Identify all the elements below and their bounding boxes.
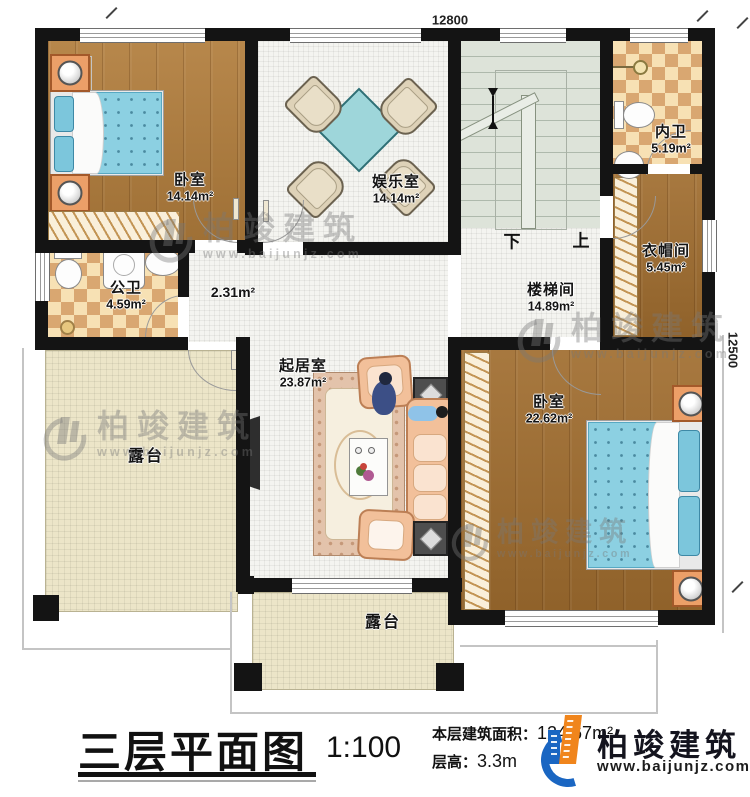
stair-down-label: 下 <box>504 228 521 253</box>
wall-bedroomr-bottom <box>658 610 715 625</box>
table-lamp-icon <box>419 527 442 550</box>
floor-terrace-bottom <box>252 592 454 690</box>
room-name: 卧室 <box>167 173 214 190</box>
floor-height-info: 层高：3.3m <box>432 751 517 772</box>
floor-height-value: 3.3m <box>477 751 517 771</box>
armchair <box>357 509 416 562</box>
window <box>80 28 205 43</box>
arrow-down-icon <box>488 88 498 97</box>
pillow <box>54 136 74 172</box>
flower-icon <box>360 463 367 470</box>
plan-title: 三层平面图 <box>78 718 308 780</box>
wall-corner-stub <box>238 576 254 594</box>
logo-tower-blue <box>548 730 560 764</box>
room-name: 楼梯间 <box>527 283 575 300</box>
outline-bottom-right <box>460 645 658 647</box>
wall-bedroomr-top <box>448 337 550 350</box>
nightstand <box>50 174 90 212</box>
floor-area-label: 本层建筑面积： <box>432 726 537 743</box>
terrace-pillar <box>33 595 59 621</box>
wall-publicbath-right <box>178 250 189 297</box>
balcony-door <box>292 578 412 594</box>
washing-machine-drum <box>113 254 135 276</box>
wardrobe-rail <box>464 352 490 610</box>
room-area: 5.19m² <box>651 141 691 155</box>
room-label-entertainment: 娱乐室 14.14m² <box>372 175 420 206</box>
sink-icon <box>145 249 181 276</box>
pillow <box>54 96 74 132</box>
bed-blanket <box>648 422 680 568</box>
room-label-terrace-bottom: 露台 <box>365 614 401 632</box>
room-area: 14.89m² <box>527 299 575 313</box>
window <box>290 28 421 43</box>
room-label-cloakroom: 衣帽间 5.45m² <box>642 244 690 275</box>
window <box>702 220 717 272</box>
wall-right <box>702 28 715 625</box>
room-label-innerbath: 内卫 5.19m² <box>651 125 691 156</box>
room-area: 14.14m² <box>167 189 214 203</box>
wall-living-bottom <box>250 578 292 592</box>
stair-up-label: 上 <box>573 227 590 252</box>
room-label-corridor: 2.31m² <box>211 285 255 301</box>
room-label-living: 起居室 23.87m² <box>279 359 327 390</box>
room-area: 4.59m² <box>106 297 146 311</box>
wall-innerbath-bottom <box>613 164 648 174</box>
room-name: 内卫 <box>651 125 691 142</box>
terrace-pillar <box>436 663 464 691</box>
outline-left <box>22 348 24 650</box>
outline-bottom-left <box>22 648 230 650</box>
room-name: 娱乐室 <box>372 175 420 192</box>
wall-bedroom-ent <box>245 28 258 255</box>
room-name: 卧室 <box>526 395 573 412</box>
lamp-icon <box>679 391 704 416</box>
window <box>505 610 658 627</box>
lamp-icon <box>58 181 83 206</box>
side-table <box>413 521 448 556</box>
outline-terrace-left <box>230 592 232 714</box>
window <box>500 28 566 43</box>
room-label-stairhall: 楼梯间 14.89m² <box>527 283 575 314</box>
wall-bedroomr-bottom <box>448 610 505 625</box>
dim-tick <box>105 7 117 19</box>
window <box>35 253 50 301</box>
room-area: 5.45m² <box>642 260 690 274</box>
dimension-right: 12500 <box>726 332 741 368</box>
room-name: 公卫 <box>106 281 146 298</box>
dimension-top: 12800 <box>432 13 468 28</box>
floor-plan-canvas: 卧室 14.14m² 娱乐室 14.14m² 内卫 5.19m² 衣帽间 5.4… <box>0 0 750 715</box>
person-lying <box>408 406 438 421</box>
wall-ent-bottom <box>303 242 461 255</box>
room-area: 14.14m² <box>372 191 420 205</box>
person-head <box>436 406 448 418</box>
toilet-icon <box>623 102 655 128</box>
outline-terrace-right <box>656 640 658 714</box>
dim-tick <box>731 581 743 593</box>
door-leaf <box>233 198 239 220</box>
room-area: 23.87m² <box>279 375 327 389</box>
pillow <box>678 430 700 492</box>
wall-innerbath-bottom <box>690 164 715 174</box>
room-label-bedroom-r: 卧室 22.62m² <box>526 395 573 426</box>
floor-drain-icon <box>60 320 75 335</box>
toilet-icon <box>55 259 82 289</box>
dim-tick <box>696 10 708 22</box>
room-name: 衣帽间 <box>642 244 690 261</box>
wall-stair-right <box>600 238 613 337</box>
window <box>630 28 688 43</box>
title-underline <box>78 772 316 777</box>
wall-ent-bottom <box>245 242 263 255</box>
terrace-pillar <box>234 663 262 691</box>
room-name: 露台 <box>365 614 401 632</box>
flower-icon <box>363 470 374 481</box>
lamp-icon <box>58 61 83 86</box>
room-name: 起居室 <box>279 359 327 376</box>
towel-ring-icon <box>633 60 648 75</box>
dim-tick <box>736 17 748 29</box>
outline-right <box>722 335 724 633</box>
door-leaf <box>263 200 269 222</box>
wall-ent-right <box>448 28 461 242</box>
room-name: 露台 <box>128 448 164 466</box>
nightstand <box>50 54 90 92</box>
person-sitting <box>372 381 396 415</box>
cup-icon <box>355 447 362 454</box>
wall-publicbath-bottom <box>35 337 188 350</box>
floor-height-label: 层高： <box>432 754 477 771</box>
person-head <box>379 372 392 385</box>
room-area: 22.62m² <box>526 411 573 425</box>
company-logo-icon <box>541 714 591 778</box>
title-underline-thin <box>78 780 316 782</box>
room-area: 2.31m² <box>211 285 255 301</box>
stair-arrow-line <box>492 96 494 122</box>
tv-icon <box>249 416 260 490</box>
bed-blanket <box>72 92 104 174</box>
pillow <box>678 496 700 556</box>
outline-terrace-bottom <box>230 712 658 714</box>
wall-left <box>35 28 48 350</box>
lamp-icon <box>679 576 704 601</box>
arrow-up-icon <box>488 120 498 129</box>
room-label-terrace-left: 露台 <box>128 448 164 466</box>
floor-terrace-left <box>45 350 238 612</box>
stair-spine <box>521 95 536 229</box>
cup-icon <box>368 447 375 454</box>
room-label-bedroom-tl: 卧室 14.14m² <box>167 173 214 204</box>
wardrobe-rail <box>48 211 180 241</box>
plan-scale: 1:100 <box>326 731 401 765</box>
wall-bedroomr-top <box>600 337 715 350</box>
wall-bedroom-bottom <box>35 240 195 253</box>
room-label-publicbath: 公卫 4.59m² <box>106 281 146 312</box>
company-website: www.baijunjz.com <box>597 758 750 775</box>
wall-living-bottom <box>412 578 462 592</box>
wall-stair-right <box>600 28 613 196</box>
wall-terrace-right <box>236 337 250 592</box>
